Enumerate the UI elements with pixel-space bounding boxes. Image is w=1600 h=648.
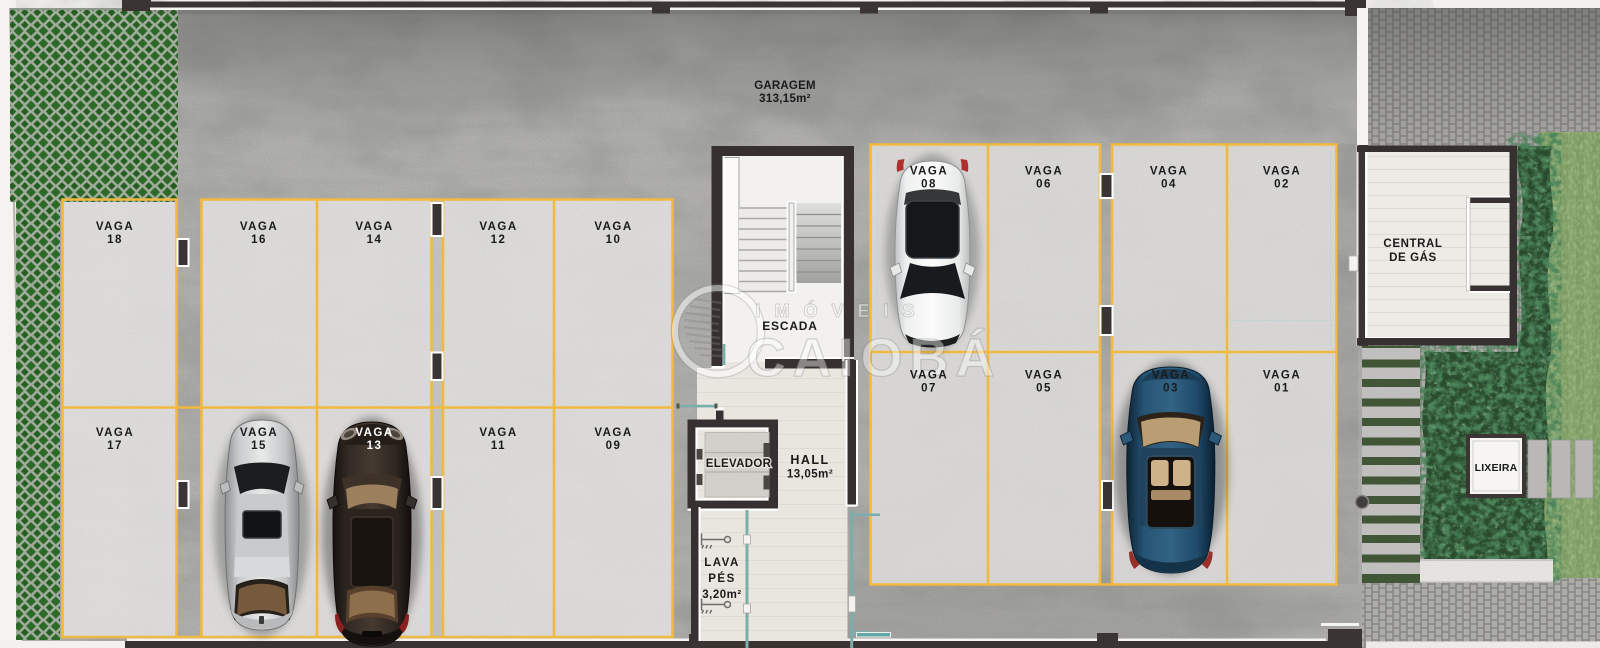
svg-text:VAGA: VAGA [355,221,393,233]
svg-text:VAGA: VAGA [910,166,948,178]
svg-text:HALL: HALL [790,453,829,467]
svg-text:18: 18 [107,234,123,246]
svg-text:CAIOBÁ: CAIOBÁ [747,328,1002,388]
svg-text:VAGA: VAGA [240,221,278,233]
svg-text:VAGA: VAGA [1263,370,1301,382]
svg-text:03: 03 [1163,383,1179,395]
svg-text:VAGA: VAGA [479,221,517,233]
svg-text:02: 02 [1274,179,1290,191]
svg-text:VAGA: VAGA [96,427,134,439]
svg-text:VAGA: VAGA [355,427,393,439]
svg-text:05: 05 [1036,383,1052,395]
svg-text:16: 16 [251,234,267,246]
svg-text:08: 08 [921,179,937,191]
svg-text:13,05m²: 13,05m² [787,469,833,481]
svg-text:ELEVADOR: ELEVADOR [706,458,772,470]
svg-text:13: 13 [367,440,383,452]
svg-text:CENTRAL: CENTRAL [1383,238,1442,250]
svg-text:PÉS: PÉS [708,572,736,585]
svg-text:VAGA: VAGA [479,427,517,439]
svg-text:LIXEIRA: LIXEIRA [1475,462,1518,474]
svg-text:VAGA: VAGA [1150,166,1188,178]
svg-text:VAGA: VAGA [594,427,632,439]
svg-text:VAGA: VAGA [240,427,278,439]
svg-text:3,20m²: 3,20m² [702,589,741,601]
svg-text:VAGA: VAGA [910,370,948,382]
svg-text:GARAGEM: GARAGEM [754,80,815,92]
svg-text:VAGA: VAGA [594,221,632,233]
svg-text:06: 06 [1036,179,1052,191]
svg-text:04: 04 [1161,179,1177,191]
svg-text:VAGA: VAGA [1025,166,1063,178]
svg-text:VAGA: VAGA [1152,370,1190,382]
svg-text:17: 17 [107,440,123,452]
svg-text:14: 14 [367,234,383,246]
svg-text:IMÓVEIS: IMÓVEIS [755,300,928,321]
svg-text:DE GÁS: DE GÁS [1389,251,1437,264]
svg-text:LAVA: LAVA [704,557,740,569]
svg-text:15: 15 [251,440,267,452]
svg-text:01: 01 [1274,383,1290,395]
svg-text:10: 10 [606,234,622,246]
svg-text:313,15m²: 313,15m² [759,93,811,105]
svg-text:11: 11 [491,440,506,452]
svg-text:VAGA: VAGA [96,221,134,233]
svg-text:12: 12 [491,234,507,246]
svg-text:09: 09 [606,440,622,452]
svg-text:ESCADA: ESCADA [762,319,817,333]
svg-text:07: 07 [921,383,937,395]
svg-text:VAGA: VAGA [1025,370,1063,382]
svg-text:VAGA: VAGA [1263,166,1301,178]
